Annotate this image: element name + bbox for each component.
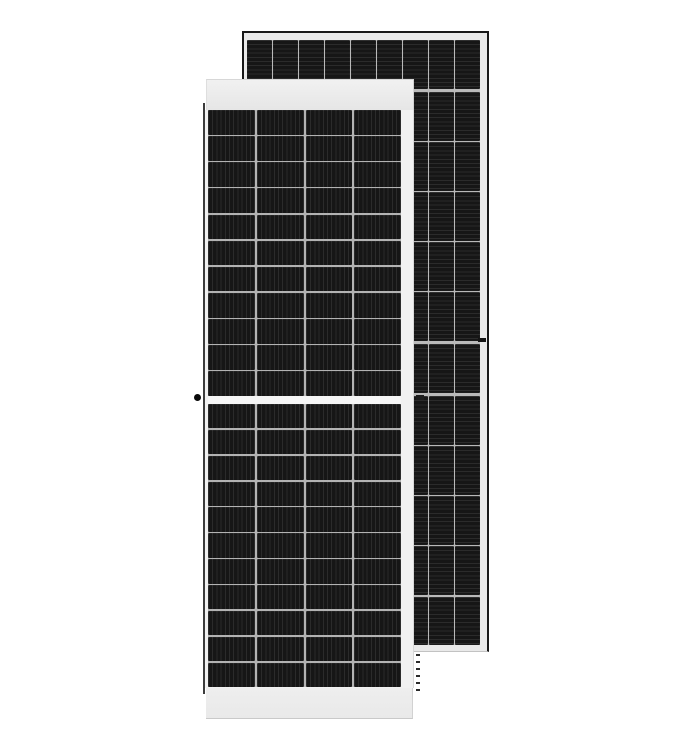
solar-cell xyxy=(208,293,255,318)
solar-cell xyxy=(455,242,480,291)
solar-cell xyxy=(354,611,401,635)
solar-cell xyxy=(257,507,304,531)
solar-cell xyxy=(306,611,353,635)
dotted-edge-artifact xyxy=(416,654,420,694)
solar-cell xyxy=(429,192,454,241)
solar-cell xyxy=(429,142,454,191)
grounding-dot xyxy=(194,394,201,401)
solar-cell xyxy=(455,546,480,595)
solar-cell xyxy=(455,597,480,646)
solar-cell xyxy=(208,241,255,266)
solar-cell xyxy=(354,293,401,318)
solar-cell xyxy=(429,40,454,89)
solar-cell xyxy=(354,241,401,266)
solar-cell xyxy=(455,92,480,141)
solar-cell xyxy=(257,611,304,635)
solar-cell xyxy=(429,446,454,495)
solar-cell xyxy=(306,507,353,531)
solar-cell xyxy=(208,456,255,480)
solar-cell xyxy=(257,345,304,370)
solar-cell xyxy=(257,267,304,292)
solar-cell xyxy=(429,344,454,393)
solar-cell xyxy=(208,507,255,531)
solar-cell xyxy=(354,162,401,187)
solar-cell xyxy=(354,188,401,213)
solar-cell xyxy=(257,430,304,454)
solar-cell xyxy=(429,496,454,545)
solar-cell xyxy=(306,482,353,506)
solar-cell xyxy=(455,496,480,545)
solar-cell xyxy=(257,188,304,213)
solar-cell xyxy=(306,430,353,454)
front-panel-cell-grid-top xyxy=(208,110,401,396)
solar-cell xyxy=(429,92,454,141)
solar-cell xyxy=(354,430,401,454)
front-panel-body xyxy=(205,110,414,688)
solar-cell xyxy=(429,597,454,646)
solar-cell xyxy=(208,215,255,240)
solar-cell xyxy=(354,663,401,687)
solar-cell xyxy=(354,110,401,135)
solar-cell xyxy=(257,293,304,318)
solar-cell xyxy=(306,533,353,557)
junction-mark xyxy=(416,395,424,400)
solar-cell xyxy=(455,446,480,495)
solar-cell xyxy=(306,319,353,344)
solar-cell xyxy=(257,533,304,557)
solar-cell xyxy=(208,585,255,609)
solar-cell xyxy=(354,533,401,557)
solar-cell xyxy=(208,663,255,687)
solar-cell xyxy=(429,396,454,445)
solar-cell xyxy=(257,136,304,161)
solar-cell xyxy=(306,663,353,687)
solar-cell xyxy=(306,585,353,609)
solar-cell xyxy=(306,637,353,661)
solar-cell xyxy=(354,456,401,480)
solar-cell xyxy=(354,507,401,531)
solar-cell xyxy=(257,456,304,480)
solar-cell xyxy=(354,404,401,428)
solar-cell xyxy=(455,40,480,89)
solar-cell xyxy=(208,611,255,635)
solar-cell xyxy=(306,371,353,396)
solar-cell xyxy=(306,456,353,480)
solar-cell xyxy=(429,546,454,595)
solar-cell xyxy=(354,371,401,396)
solar-cell xyxy=(306,188,353,213)
solar-cell xyxy=(306,345,353,370)
solar-cell xyxy=(354,215,401,240)
solar-cell xyxy=(306,215,353,240)
solar-cell xyxy=(455,292,480,341)
solar-cell xyxy=(257,371,304,396)
product-photo-scene xyxy=(0,0,684,748)
solar-cell xyxy=(306,559,353,583)
center-gap xyxy=(208,396,401,404)
solar-cell xyxy=(306,110,353,135)
solar-cell xyxy=(429,242,454,291)
solar-cell xyxy=(208,559,255,583)
solar-cell xyxy=(306,136,353,161)
solar-cell xyxy=(354,559,401,583)
solar-cell xyxy=(354,136,401,161)
solar-cell xyxy=(455,344,480,393)
solar-cell xyxy=(354,482,401,506)
solar-cell xyxy=(208,371,255,396)
solar-cell xyxy=(208,319,255,344)
solar-cell xyxy=(208,162,255,187)
solar-cell xyxy=(208,345,255,370)
solar-cell xyxy=(354,345,401,370)
solar-cell xyxy=(455,192,480,241)
solar-cell xyxy=(429,292,454,341)
frame-bottom-band xyxy=(206,688,413,719)
solar-cell xyxy=(257,663,304,687)
solar-cell xyxy=(306,267,353,292)
solar-cell xyxy=(354,319,401,344)
solar-cell xyxy=(354,585,401,609)
frame-top-band xyxy=(206,79,414,110)
solar-cell xyxy=(208,267,255,292)
front-panel-cell-grid-bottom xyxy=(208,404,401,687)
solar-cell xyxy=(208,637,255,661)
solar-cell xyxy=(455,142,480,191)
solar-cell xyxy=(306,404,353,428)
solar-cell xyxy=(208,533,255,557)
solar-cell xyxy=(208,482,255,506)
solar-cell xyxy=(208,136,255,161)
solar-cell xyxy=(257,482,304,506)
solar-cell xyxy=(257,585,304,609)
frame-hole-mark xyxy=(478,338,486,342)
solar-cell xyxy=(306,162,353,187)
solar-cell xyxy=(208,430,255,454)
solar-cell xyxy=(354,637,401,661)
solar-cell xyxy=(354,267,401,292)
solar-cell xyxy=(257,404,304,428)
solar-cell xyxy=(257,559,304,583)
solar-cell xyxy=(257,110,304,135)
solar-cell xyxy=(208,404,255,428)
solar-cell xyxy=(208,188,255,213)
solar-cell xyxy=(208,110,255,135)
solar-cell xyxy=(306,293,353,318)
solar-cell xyxy=(257,215,304,240)
solar-cell xyxy=(257,319,304,344)
solar-cell xyxy=(257,637,304,661)
solar-cell xyxy=(306,241,353,266)
solar-panel-front xyxy=(203,79,415,719)
solar-cell xyxy=(257,162,304,187)
solar-cell xyxy=(455,396,480,445)
solar-cell xyxy=(257,241,304,266)
